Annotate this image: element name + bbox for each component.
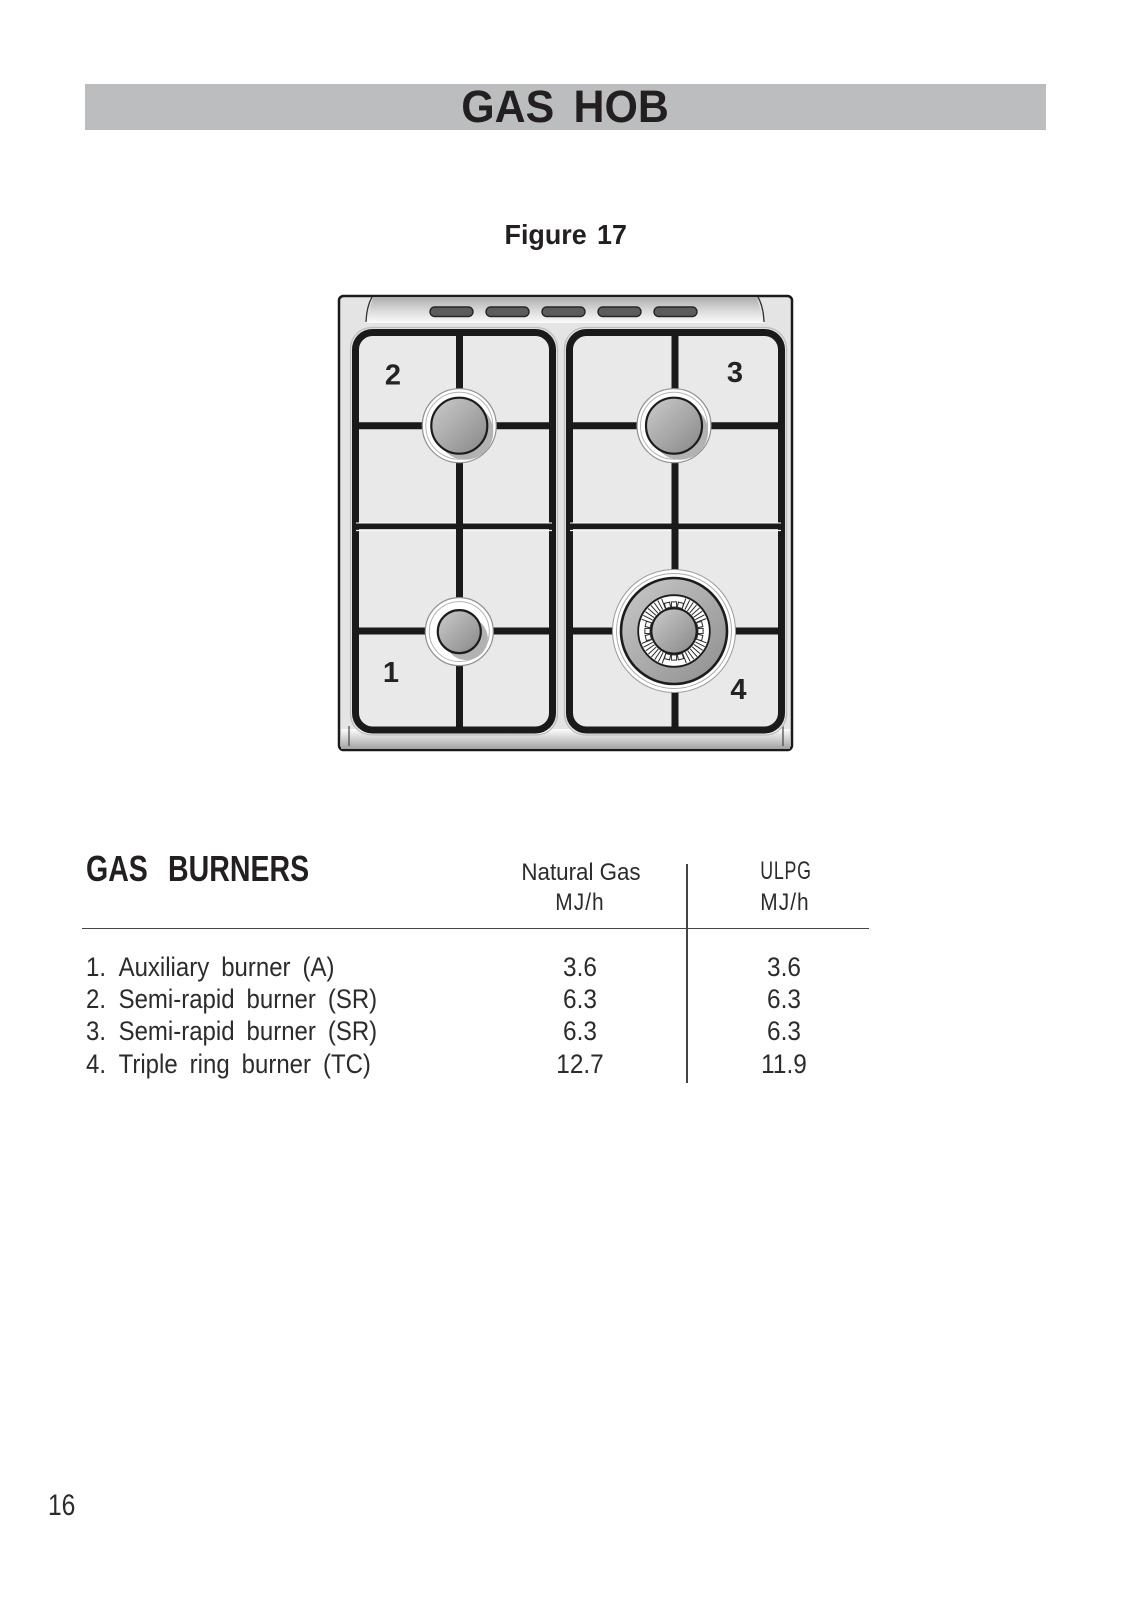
svg-text:2: 2: [385, 360, 401, 392]
svg-text:3: 3: [727, 357, 743, 389]
svg-text:1: 1: [383, 657, 399, 689]
svg-text:4: 4: [730, 674, 746, 706]
